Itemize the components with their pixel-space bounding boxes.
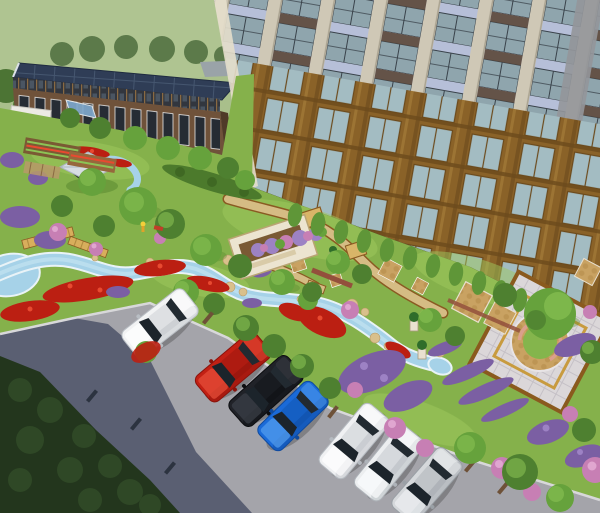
rendering-canvas: [0, 0, 600, 513]
person-figure: [141, 222, 146, 227]
landscape-rendering: [0, 0, 600, 513]
plaza-tree: [524, 288, 576, 340]
topiary-pillar: [417, 340, 427, 359]
topiary-pillar: [409, 312, 419, 331]
